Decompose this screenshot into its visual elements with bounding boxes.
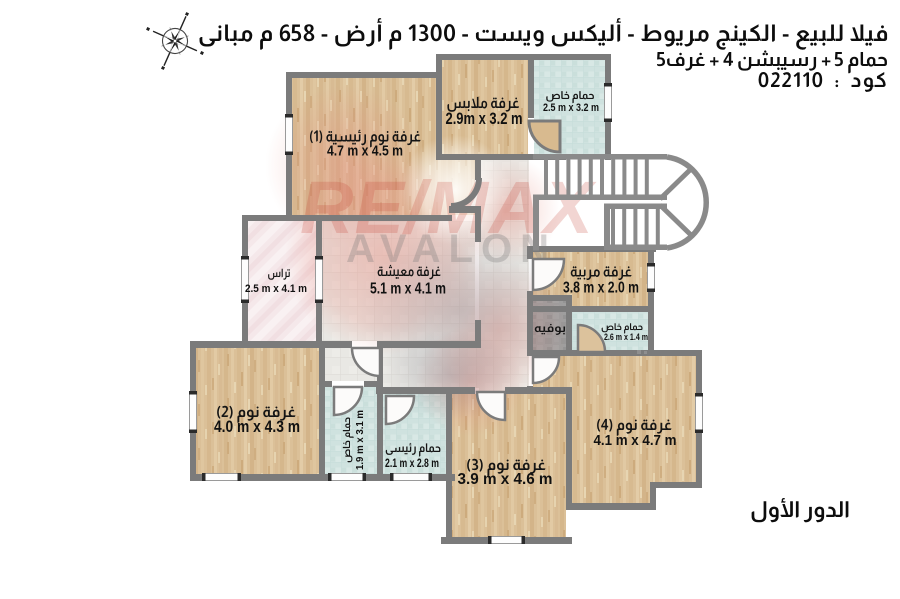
- svg-text:4.7 m x 4.5 m: 4.7 m x 4.5 m: [327, 143, 403, 160]
- svg-text:2.1 m x 2.8 m: 2.1 m x 2.8 m: [385, 458, 439, 470]
- svg-text:AVALON: AVALON: [346, 227, 557, 271]
- svg-text:4.0 m x 4.3 m: 4.0 m x 4.3 m: [214, 418, 300, 436]
- svg-text:3.9 m x 4.6 m: 3.9 m x 4.6 m: [458, 471, 553, 488]
- svg-text:5.1 m x 4.1 m: 5.1 m x 4.1 m: [370, 281, 446, 298]
- svg-text:2.5 m x 4.1 m: 2.5 m x 4.1 m: [245, 283, 307, 295]
- svg-text:2.5 m x 3.2 m: 2.5 m x 3.2 m: [543, 102, 599, 114]
- svg-text:1.9 m x 3.1 m: 1.9 m x 3.1 m: [355, 410, 366, 470]
- svg-text:2.9m x 3.2 m: 2.9m x 3.2 m: [446, 110, 523, 128]
- svg-text:3.8 m x 2.0 m: 3.8 m x 2.0 m: [563, 280, 639, 297]
- svg-text:4.1 m x 4.7 m: 4.1 m x 4.7 m: [594, 432, 677, 449]
- svg-text:2.6 m x 1.4 m: 2.6 m x 1.4 m: [604, 332, 648, 342]
